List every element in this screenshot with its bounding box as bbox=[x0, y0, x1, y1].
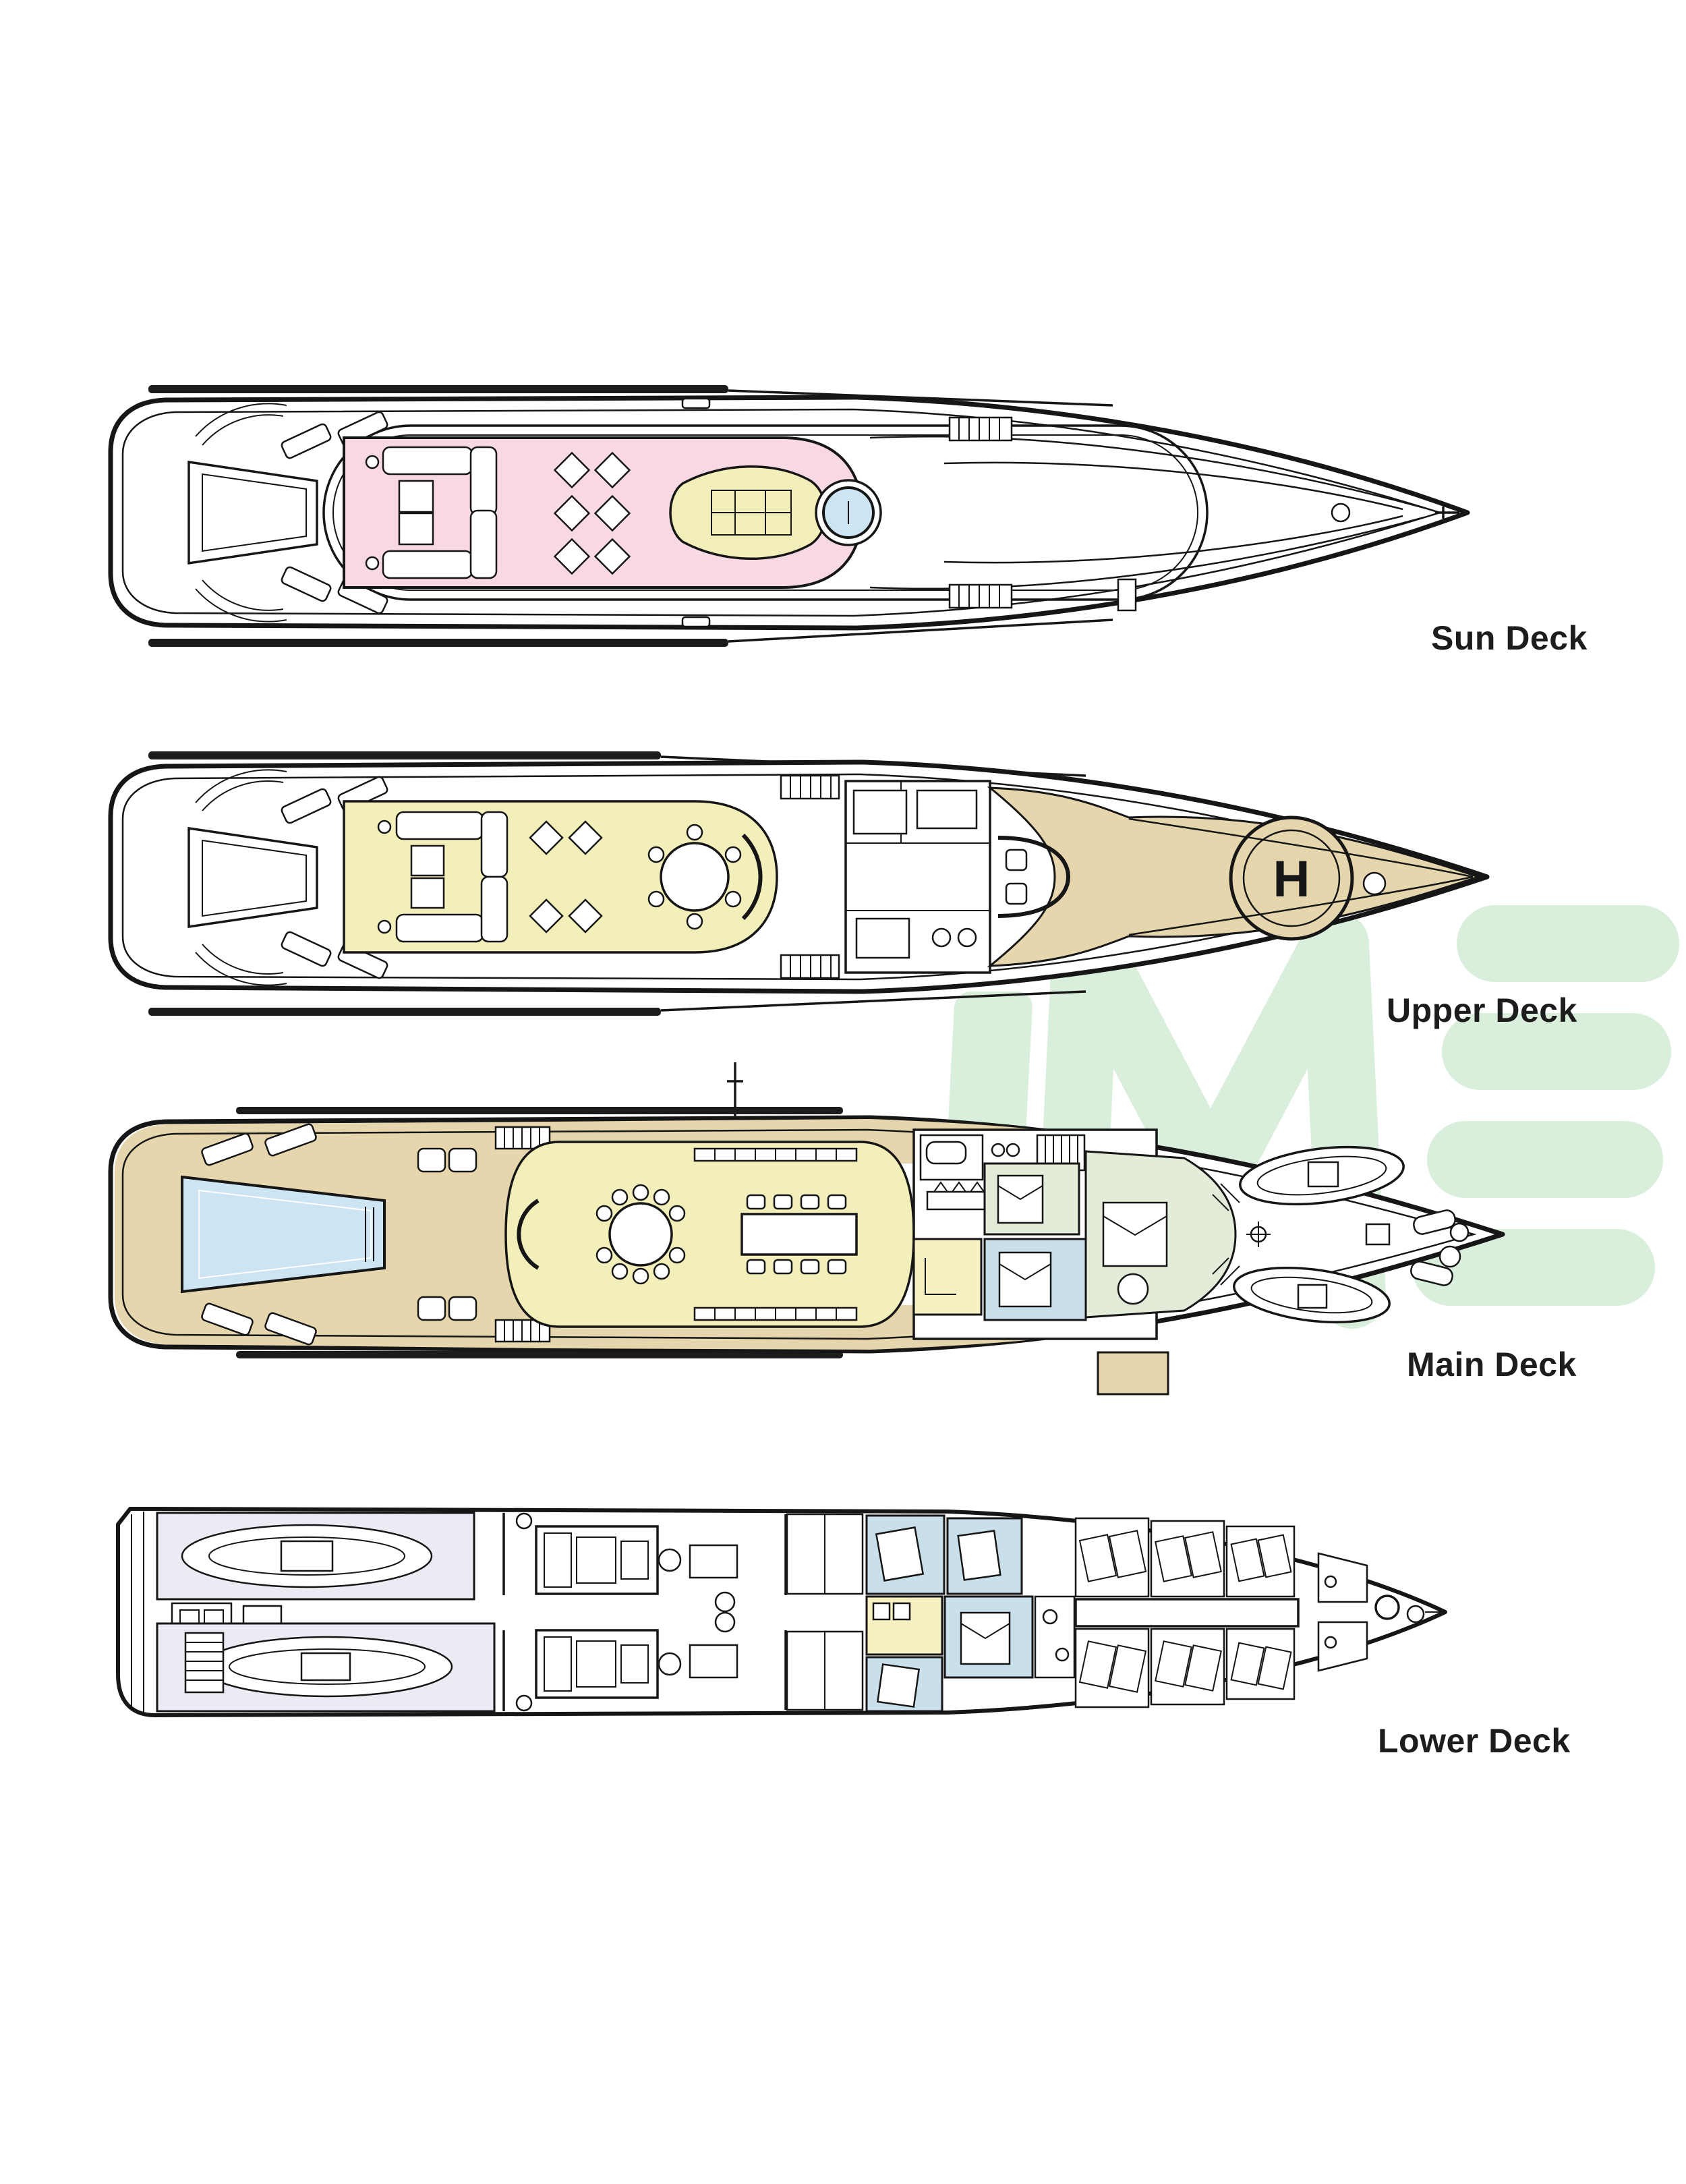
side-bench bbox=[682, 399, 709, 408]
upper-deck-plan: H bbox=[101, 749, 1497, 1018]
sun-deck-plan bbox=[101, 381, 1477, 651]
crew-cabins-bottom bbox=[1076, 1629, 1294, 1707]
laundry-room bbox=[867, 1597, 942, 1655]
boarding-platform bbox=[1098, 1352, 1168, 1394]
deck-locker bbox=[1118, 579, 1136, 610]
stern-side-rail bbox=[148, 385, 728, 393]
pantry-counter bbox=[856, 919, 909, 958]
tender-garage-top bbox=[157, 1513, 474, 1599]
crew-cabins-top bbox=[1076, 1518, 1294, 1597]
yacht-deck-plans-page: { "watermark": { "text": "IME", "color":… bbox=[0, 0, 1686, 2184]
captain-bed bbox=[854, 791, 906, 834]
helipad: H bbox=[1231, 817, 1352, 939]
deck-hatch bbox=[1364, 873, 1385, 894]
deck-label-main: Main Deck bbox=[1407, 1348, 1577, 1381]
bathtub bbox=[927, 1142, 966, 1163]
guest-cabin-blue bbox=[985, 1239, 1086, 1320]
deck-hatch bbox=[1332, 504, 1349, 521]
guest-cabin bbox=[867, 1516, 944, 1594]
side-bench bbox=[682, 617, 709, 627]
mast-base-structure bbox=[189, 462, 317, 563]
helipad-letter: H bbox=[1273, 851, 1310, 908]
side-rail bbox=[236, 1107, 843, 1114]
stern-side-rail bbox=[148, 639, 728, 647]
cabin-table bbox=[1118, 1274, 1148, 1304]
guest-cabin bbox=[945, 1597, 1033, 1677]
guest-cabin bbox=[867, 1657, 942, 1711]
lower-deck-plan bbox=[105, 1501, 1460, 1723]
guest-cabin bbox=[948, 1518, 1022, 1594]
main-deck-plan bbox=[101, 1062, 1511, 1400]
wc-fixture bbox=[958, 929, 976, 946]
deck-label-upper: Upper Deck bbox=[1387, 994, 1577, 1027]
crew-corridor bbox=[1076, 1599, 1298, 1626]
wc-fixture bbox=[933, 929, 950, 946]
deck-label-lower: Lower Deck bbox=[1378, 1724, 1571, 1758]
tender-garage-bottom bbox=[157, 1623, 494, 1711]
guest-cabin-green bbox=[985, 1163, 1079, 1234]
bathroom bbox=[1035, 1597, 1074, 1677]
deck-label-sun: Sun Deck bbox=[1431, 621, 1588, 655]
stern-side-rail bbox=[148, 751, 661, 759]
deck-box bbox=[1366, 1224, 1389, 1244]
cabin-furniture bbox=[917, 791, 977, 828]
stern-side-rail bbox=[148, 1008, 661, 1016]
service-room-yellow bbox=[914, 1239, 981, 1315]
